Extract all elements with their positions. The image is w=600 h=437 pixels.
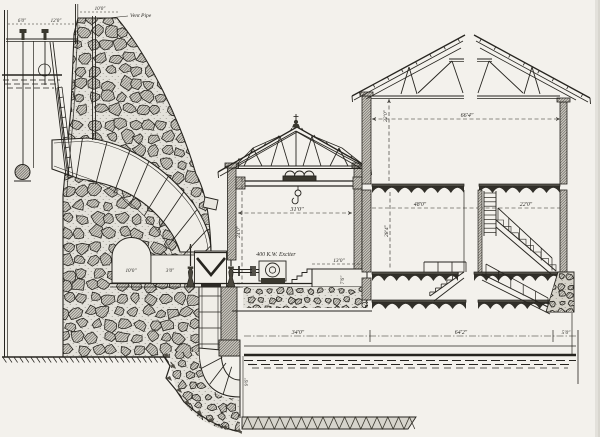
svg-text:9′6″: 9′6″ bbox=[245, 377, 250, 386]
svg-text:5′0″: 5′0″ bbox=[562, 330, 572, 336]
svg-text:13′0″: 13′0″ bbox=[333, 258, 345, 264]
svg-text:66′4″: 66′4″ bbox=[461, 112, 474, 119]
svg-text:22′0″: 22′0″ bbox=[383, 109, 389, 122]
svg-text:34′0″: 34′0″ bbox=[291, 329, 305, 336]
svg-text:6′0″: 6′0″ bbox=[18, 19, 27, 24]
svg-text:10′0″: 10′0″ bbox=[95, 7, 107, 12]
svg-text:7′6″: 7′6″ bbox=[340, 275, 346, 284]
svg-text:Vent Pipe: Vent Pipe bbox=[130, 13, 152, 19]
svg-text:3′0″: 3′0″ bbox=[166, 269, 175, 274]
svg-text:22′0″: 22′0″ bbox=[520, 202, 533, 208]
svg-text:28′4″: 28′4″ bbox=[384, 224, 390, 237]
svg-text:64′2″: 64′2″ bbox=[455, 329, 468, 336]
svg-text:24′0″: 24′0″ bbox=[236, 225, 242, 238]
svg-text:48′0″: 48′0″ bbox=[414, 201, 427, 208]
svg-text:10′0″: 10′0″ bbox=[125, 268, 137, 274]
svg-text:12′0″: 12′0″ bbox=[51, 19, 63, 24]
svg-text:400 K.W. Exciter: 400 K.W. Exciter bbox=[256, 251, 296, 258]
svg-text:31′0″: 31′0″ bbox=[289, 206, 304, 213]
